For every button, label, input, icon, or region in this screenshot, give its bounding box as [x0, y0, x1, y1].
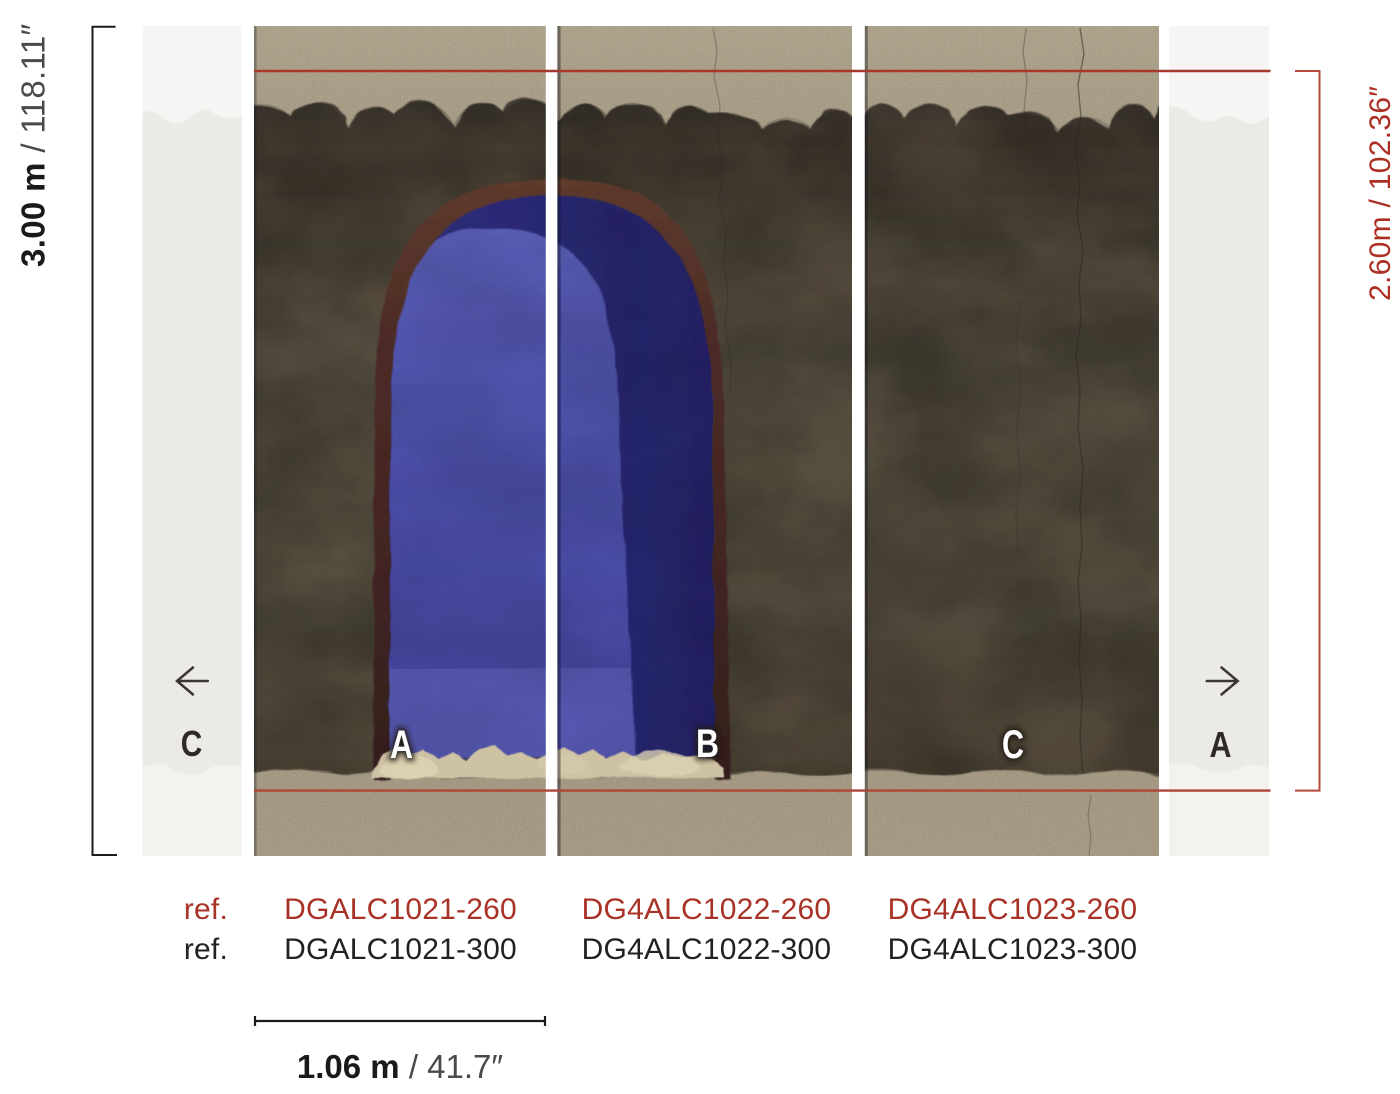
svg-text:C: C [181, 723, 203, 764]
svg-text:ref.: ref. [184, 893, 228, 926]
svg-text:2.60m / 102.36″: 2.60m / 102.36″ [1364, 86, 1397, 301]
svg-text:3.00 m / 118.11″: 3.00 m / 118.11″ [15, 23, 52, 267]
svg-text:DG4ALC1023-260: DG4ALC1023-260 [888, 893, 1138, 926]
svg-text:1.06 m / 41.7″: 1.06 m / 41.7″ [297, 1048, 503, 1085]
svg-text:A: A [1210, 724, 1232, 765]
svg-text:DG4ALC1023-300: DG4ALC1023-300 [888, 933, 1138, 966]
svg-text:DGALC1021-300: DGALC1021-300 [284, 933, 517, 966]
svg-text:C: C [1002, 723, 1024, 767]
svg-text:DG4ALC1022-300: DG4ALC1022-300 [582, 933, 832, 966]
svg-text:A: A [390, 723, 413, 767]
svg-text:DGALC1021-260: DGALC1021-260 [284, 893, 517, 926]
svg-text:ref.: ref. [184, 933, 228, 966]
svg-text:DG4ALC1022-260: DG4ALC1022-260 [582, 893, 832, 926]
svg-text:B: B [696, 722, 719, 766]
